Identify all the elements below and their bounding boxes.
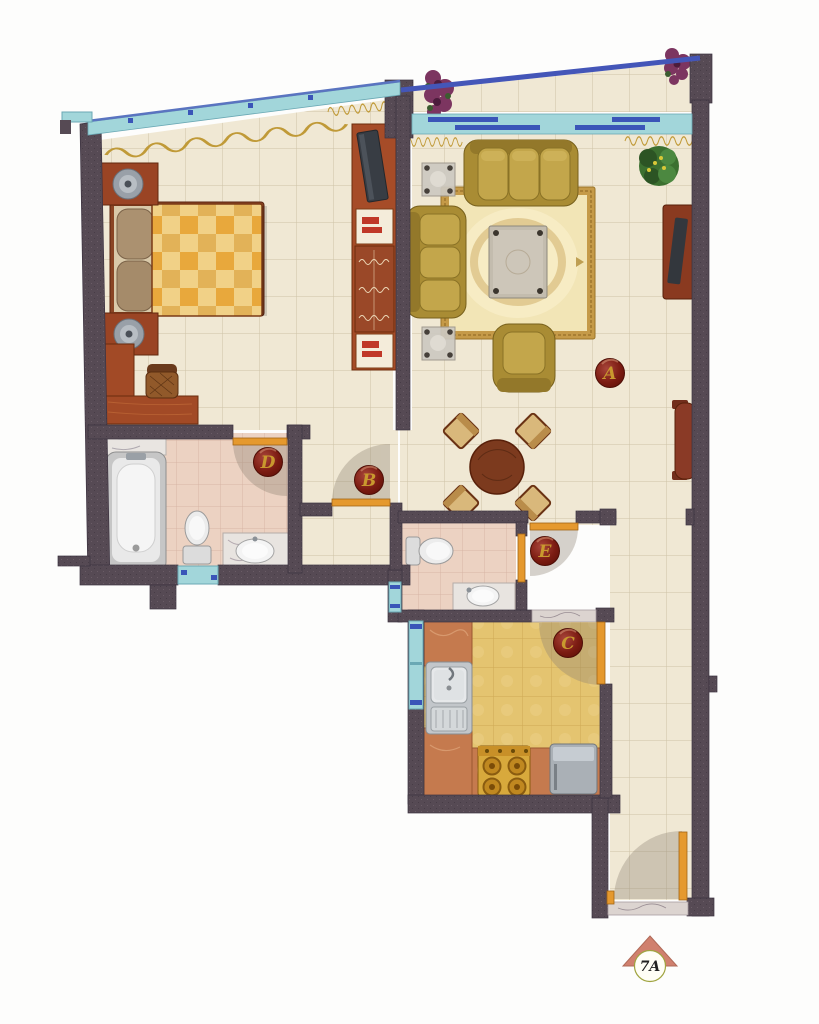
armchair-cushion	[503, 332, 545, 374]
wash-basin	[453, 583, 515, 611]
tv-cabinet	[663, 205, 694, 299]
double-bed	[110, 202, 267, 316]
room-label-kitchen-c: C	[554, 629, 583, 658]
wall-kitchen-south	[408, 795, 620, 813]
folded-clothes-icon	[362, 217, 382, 233]
toilet-tank	[406, 537, 420, 565]
table-leg	[447, 165, 453, 171]
unit-logo: 7A	[623, 936, 677, 982]
wall-hall-b-stub	[300, 503, 332, 516]
balcony-sliding-door	[412, 114, 692, 134]
wall-bracket-right	[686, 509, 694, 525]
toilet-seat	[189, 516, 205, 540]
dresser-front	[102, 396, 198, 424]
table-highlight	[430, 335, 446, 351]
wall-long-a	[398, 511, 528, 523]
faucet	[126, 453, 146, 460]
toilet-seat	[426, 542, 450, 560]
loveseat-cushion	[420, 280, 460, 311]
table-leg	[447, 329, 453, 335]
coffee-table-inner	[493, 230, 543, 294]
faucet	[467, 588, 472, 593]
door-leaf-passage-e	[530, 523, 578, 530]
faucet	[253, 537, 258, 542]
wall-bath-d-east	[288, 425, 302, 573]
sink-basin-inner	[434, 670, 464, 700]
folded-clothes-icon	[362, 341, 382, 357]
table-leg	[447, 352, 453, 358]
room-label-text: E	[538, 542, 553, 562]
wall-notch-right	[709, 676, 717, 692]
toilet	[183, 511, 211, 564]
cushion-highlight	[481, 151, 505, 161]
wall-foot-post	[150, 585, 176, 609]
fridge-handle	[554, 764, 557, 790]
wall-exterior-right	[692, 100, 709, 916]
refrigerator	[550, 744, 597, 794]
wall-flange-left	[58, 556, 90, 566]
wall-kitchen-ne-post	[596, 608, 614, 622]
lamp-center	[125, 181, 132, 188]
wash-basin	[223, 533, 289, 567]
armchair-back	[497, 378, 551, 392]
door-leaf-bath-d	[233, 438, 287, 445]
basin-inner	[472, 590, 494, 603]
kitchen-sink	[426, 662, 472, 734]
fridge-top	[553, 747, 594, 761]
wall-bedroom-south-a	[88, 425, 233, 439]
stool	[146, 364, 178, 398]
sofa-three-seat	[464, 140, 578, 206]
door-leaf-bath-e	[518, 534, 525, 582]
threshold-kitchen	[532, 610, 596, 622]
wall-pillar-balcony-right	[690, 54, 712, 103]
room-label-hall-b: B	[355, 466, 384, 495]
kitchen-window	[409, 621, 423, 709]
armchair	[493, 324, 555, 392]
dining-table	[470, 440, 524, 494]
table-leg	[424, 329, 430, 335]
floor-plan-page: A B C D E 7A	[0, 0, 819, 1024]
wall-long-post	[600, 509, 616, 525]
lamp-center	[126, 331, 133, 338]
stove-knob	[524, 749, 528, 753]
door-stub-entry	[607, 891, 614, 904]
drain	[447, 686, 452, 691]
wall-corridor-west	[592, 798, 608, 918]
bed-plaid-blanket	[152, 204, 262, 316]
room-label-text: B	[361, 471, 376, 491]
table-leg	[537, 288, 543, 294]
wall-bath-e-east-b	[516, 580, 527, 612]
door-leaf-hall-b	[332, 499, 390, 506]
wall-bath-south-a	[80, 565, 178, 585]
cushion-highlight	[512, 151, 536, 161]
drain	[133, 545, 140, 552]
door-leaf-entry	[679, 832, 687, 900]
bathroom-e-window	[389, 582, 401, 612]
wall-kitchen-east	[600, 684, 612, 798]
wall-bath-south-b	[218, 565, 410, 585]
loveseat	[406, 206, 466, 318]
loveseat-cushion	[420, 214, 460, 245]
table-leg	[424, 188, 430, 194]
potted-plant	[639, 146, 679, 186]
dresser-side	[102, 344, 134, 400]
room-label-text: C	[561, 634, 575, 654]
room-label-bath-d: D	[254, 448, 283, 477]
room-label-living-a: A	[596, 359, 625, 388]
table-leg	[447, 188, 453, 194]
room-label-text: D	[260, 453, 276, 473]
pillow	[117, 209, 153, 259]
nightstand-north	[100, 163, 158, 205]
floor-plan-drawing: A B C D E 7A	[0, 0, 819, 1024]
pillow	[117, 261, 153, 311]
room-label-bath-e: E	[531, 537, 560, 566]
toilet-tank	[183, 546, 211, 564]
stool-seat	[146, 372, 178, 398]
table-leg	[424, 352, 430, 358]
stove-knob	[511, 749, 515, 753]
table-leg	[493, 288, 499, 294]
wardrobe	[352, 124, 396, 370]
toilet	[406, 537, 453, 565]
bed-shadow	[262, 206, 267, 316]
room-label-text: A	[601, 364, 616, 384]
door-leaf-kitchen-c	[597, 622, 605, 684]
side-table-south	[422, 327, 455, 360]
basin-inner	[242, 543, 268, 559]
table-leg	[424, 165, 430, 171]
wall-bath-e-south	[398, 610, 532, 622]
stove-knob	[485, 749, 489, 753]
logo-text: 7A	[640, 959, 661, 975]
table-leg	[537, 230, 543, 236]
coffee-table	[489, 226, 547, 298]
bathroom-d-window	[178, 566, 218, 584]
table-highlight	[430, 171, 446, 187]
table-leg	[493, 230, 499, 236]
loveseat-cushion	[420, 247, 460, 278]
cushion-highlight	[543, 151, 567, 161]
wall-footing-entry	[687, 898, 714, 916]
window-sill-left-post	[60, 120, 71, 134]
bathtub	[106, 452, 166, 572]
stove	[478, 746, 530, 796]
side-table-north	[422, 163, 455, 196]
stove-knob	[498, 749, 502, 753]
wall-divider-bedroom-living	[396, 96, 410, 430]
